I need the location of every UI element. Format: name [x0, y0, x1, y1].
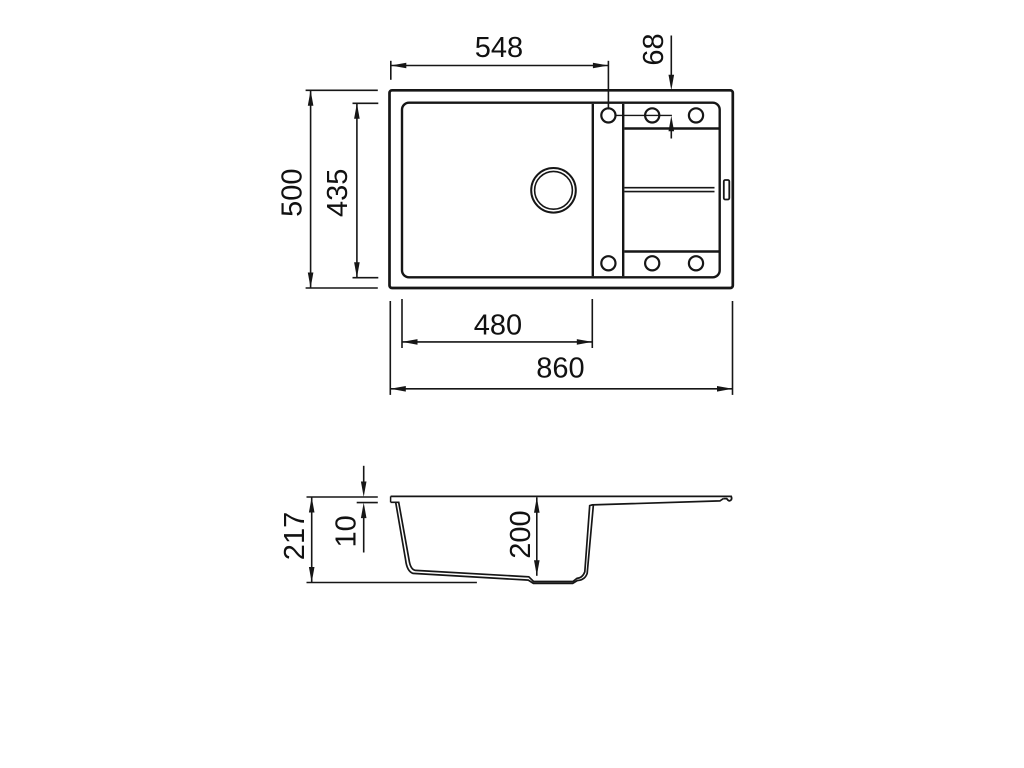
svg-text:217: 217	[279, 512, 311, 560]
svg-text:200: 200	[505, 510, 537, 558]
svg-text:68: 68	[638, 33, 670, 65]
svg-text:548: 548	[475, 32, 523, 64]
svg-text:480: 480	[474, 310, 522, 342]
svg-text:500: 500	[276, 169, 308, 217]
svg-text:10: 10	[331, 515, 363, 547]
svg-text:860: 860	[536, 353, 584, 385]
svg-text:435: 435	[322, 169, 354, 217]
